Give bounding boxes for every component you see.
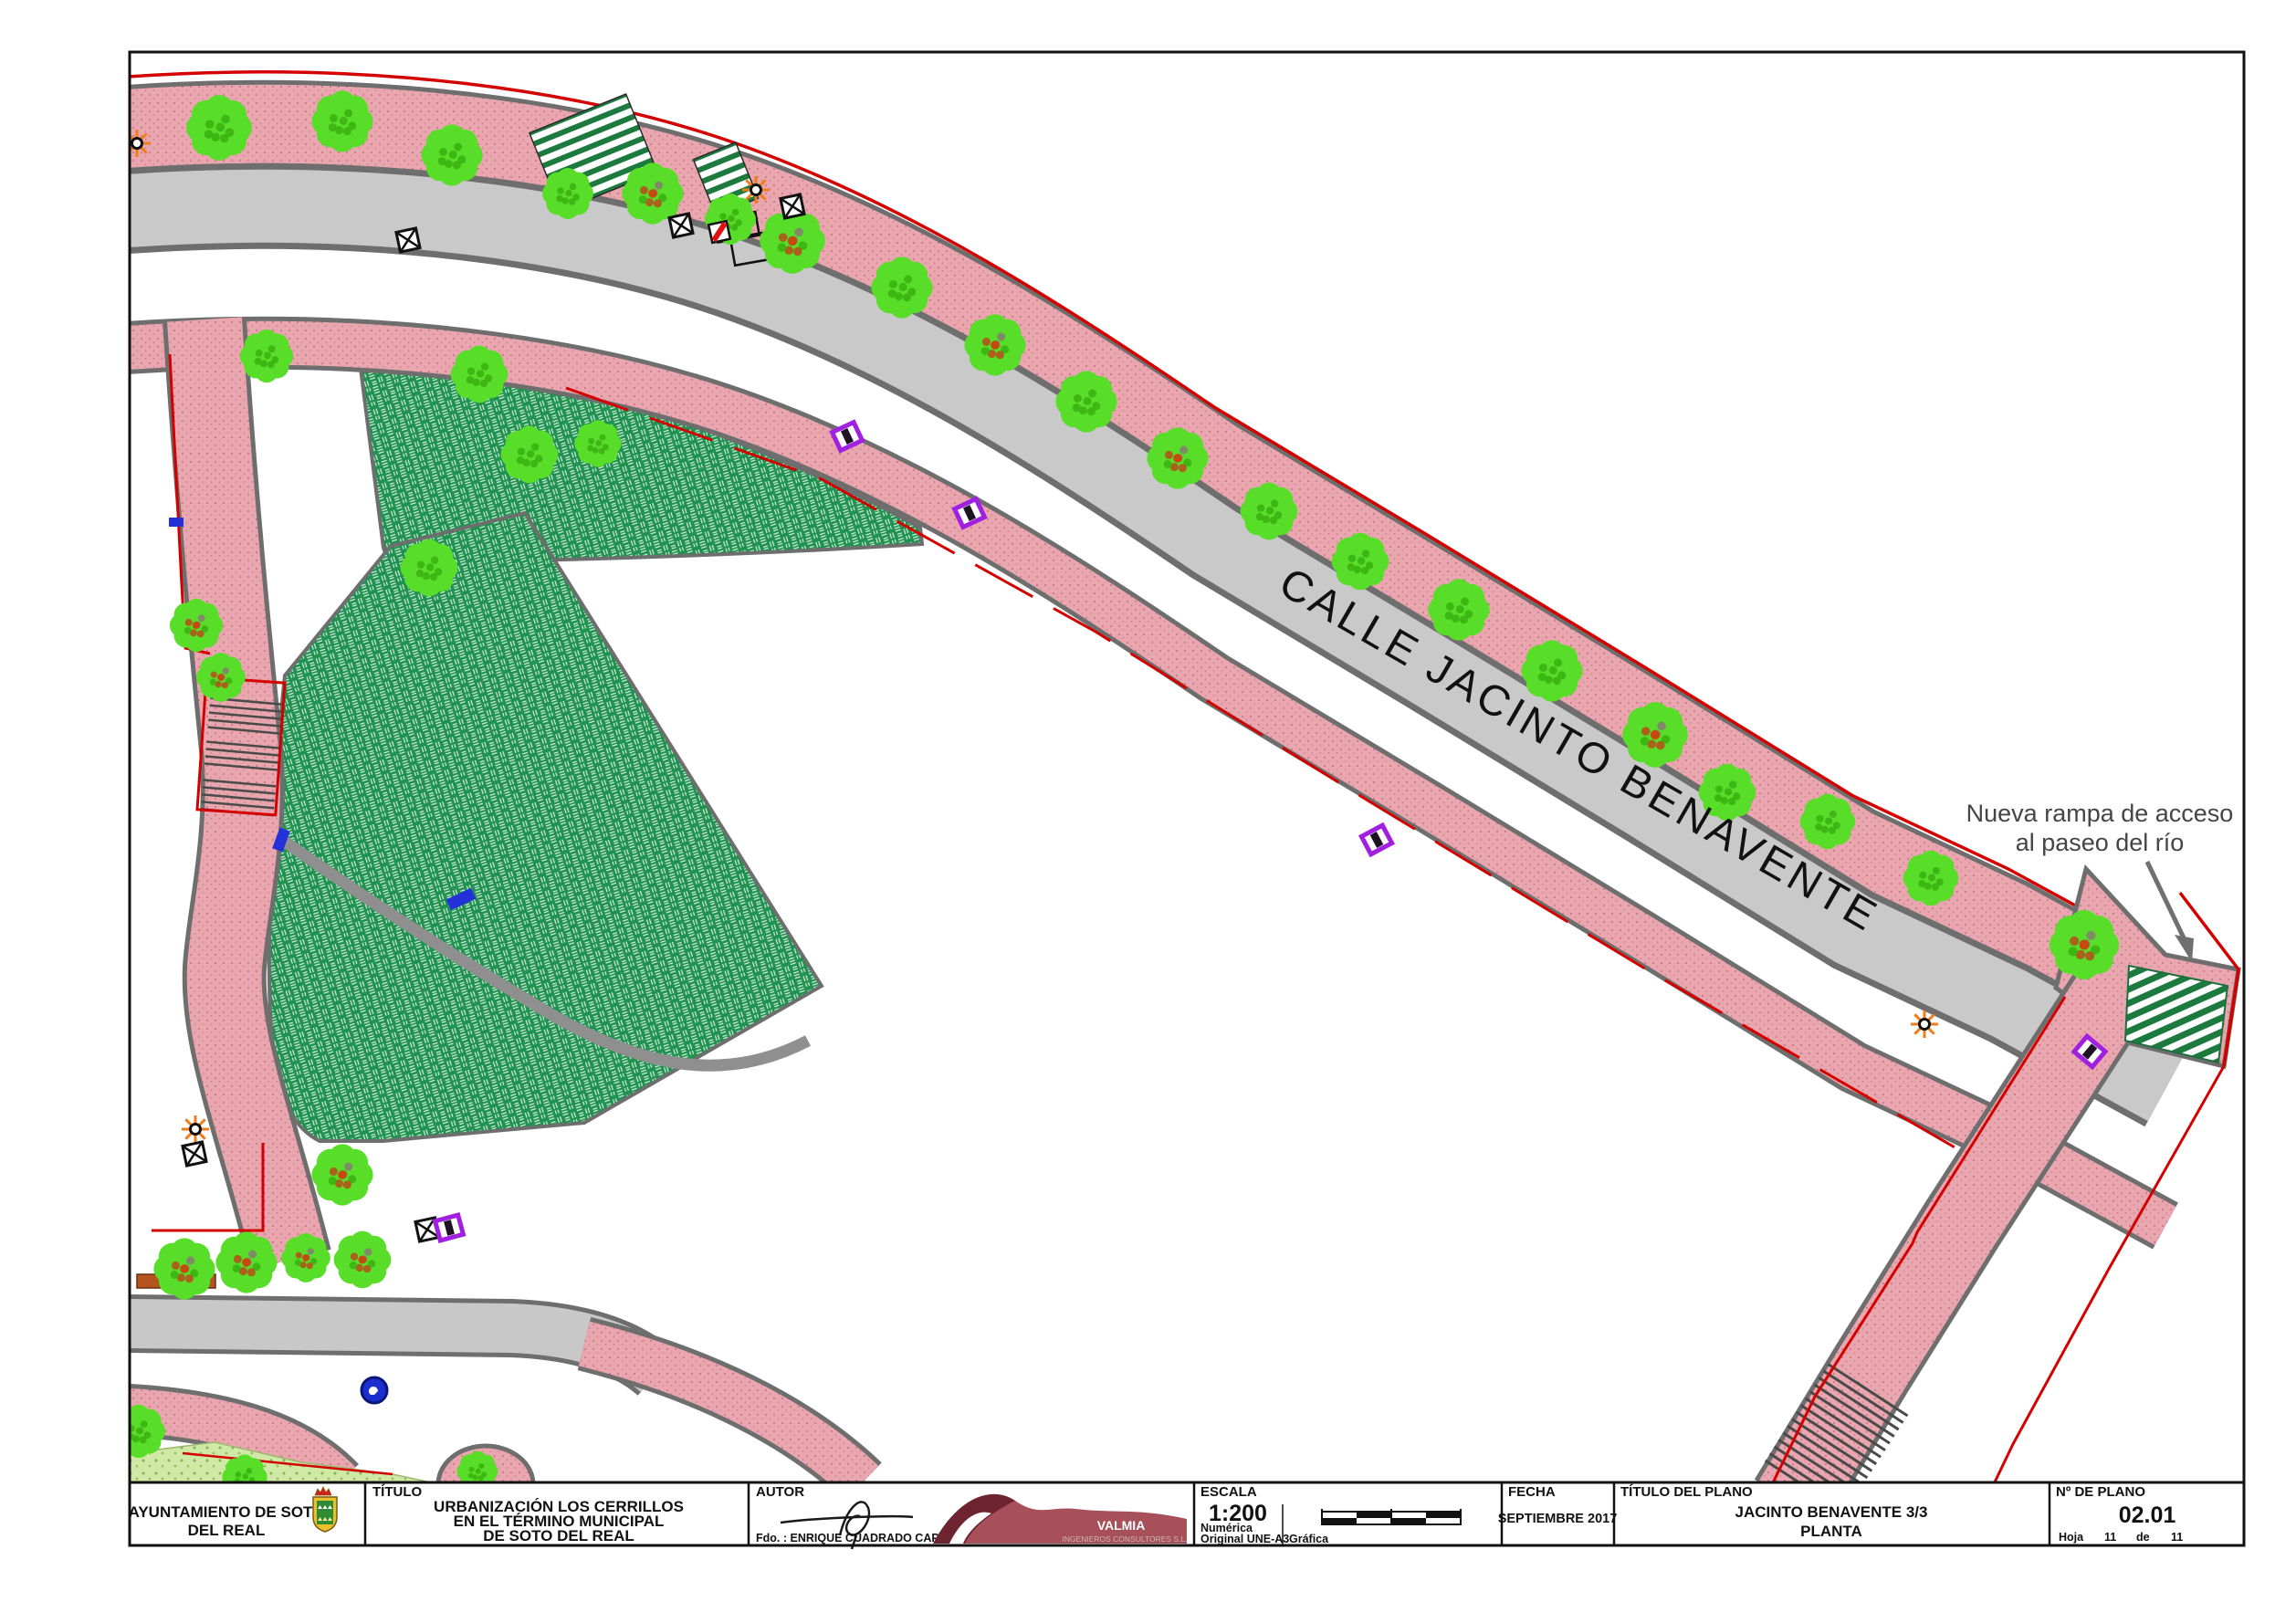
svg-text:AYUNTAMIENTO DE SOTO: AYUNTAMIENTO DE SOTO xyxy=(129,1503,325,1521)
bench-icon xyxy=(1361,825,1391,854)
tree-fruit-icon xyxy=(760,208,825,274)
tree-fruit-icon xyxy=(311,1144,372,1205)
annotation-arrow xyxy=(2147,862,2189,949)
svg-text:de: de xyxy=(2136,1531,2150,1544)
plan-sheet: CALLE JACINTO BENAVENTE Nueva rampa de a… xyxy=(0,0,2296,1602)
svg-text:DE SOTO DEL REAL: DE SOTO DEL REAL xyxy=(483,1527,634,1544)
svg-text:Hoja: Hoja xyxy=(2059,1531,2084,1544)
tree-icon xyxy=(311,90,372,152)
utility-box-icon xyxy=(183,1142,206,1166)
svg-text:Gráfica: Gráfica xyxy=(1289,1533,1329,1545)
svg-text:PLANTA: PLANTA xyxy=(1800,1523,1862,1540)
tree-icon xyxy=(1800,794,1855,849)
graphic-scale-bar xyxy=(1322,1509,1461,1524)
svg-text:INGENIEROS CONSULTORES S.L.: INGENIEROS CONSULTORES S.L. xyxy=(1062,1534,1187,1544)
tree-icon xyxy=(451,346,508,403)
tree-icon xyxy=(240,330,293,382)
tree-icon xyxy=(1428,579,1489,640)
electric-box-icon xyxy=(708,221,730,243)
tree-fruit-icon xyxy=(964,314,1025,375)
tree-icon xyxy=(1241,483,1298,540)
svg-text:TÍTULO DEL PLANO: TÍTULO DEL PLANO xyxy=(1620,1484,1753,1500)
plan-canvas: CALLE JACINTO BENAVENTE Nueva rampa de a… xyxy=(0,0,2296,1602)
left-walkway xyxy=(170,319,290,1260)
streetlight-icon xyxy=(742,176,770,204)
svg-text:Nº DE PLANO: Nº DE PLANO xyxy=(2056,1484,2145,1500)
tree-icon xyxy=(421,124,482,185)
tree-icon xyxy=(186,95,252,161)
bench-icon xyxy=(435,1215,464,1241)
svg-text:Nueva rampa de acceso: Nueva rampa de acceso xyxy=(1966,800,2234,827)
svg-text:Original UNE-A3: Original UNE-A3 xyxy=(1200,1533,1289,1545)
svg-text:AUTOR: AUTOR xyxy=(756,1484,804,1500)
svg-text:VALMIA: VALMIA xyxy=(1097,1518,1146,1533)
tree-icon xyxy=(1903,851,1958,906)
tree-icon xyxy=(1332,533,1389,591)
tree-icon xyxy=(871,257,932,318)
title-block: AYUNTAMIENTO DE SOTO DEL REAL TÍTULO URB… xyxy=(129,1482,2244,1549)
utility-box-icon xyxy=(396,228,420,252)
svg-text:ESCALA: ESCALA xyxy=(1200,1484,1257,1500)
tree-fruit-icon xyxy=(1147,427,1208,488)
tree-icon xyxy=(574,420,622,467)
site-plan: CALLE JACINTO BENAVENTE Nueva rampa de a… xyxy=(112,72,2238,1534)
svg-text:al paseo del río: al paseo del río xyxy=(2016,829,2185,856)
tree-fruit-icon xyxy=(2050,910,2119,979)
tree-fruit-icon xyxy=(334,1231,392,1289)
tree-fruit-icon xyxy=(153,1238,215,1299)
streetlight-icon xyxy=(182,1115,209,1143)
svg-text:TÍTULO: TÍTULO xyxy=(372,1484,422,1500)
tree-icon xyxy=(112,1405,165,1458)
streetlight-icon xyxy=(123,130,151,157)
svg-text:11: 11 xyxy=(2104,1531,2116,1544)
tree-icon xyxy=(501,426,559,484)
tree-fruit-icon xyxy=(170,599,223,652)
streetlight-icon xyxy=(1911,1010,1938,1038)
svg-text:SEPTIEMBRE 2017: SEPTIEMBRE 2017 xyxy=(1498,1512,1618,1526)
tree-fruit-icon xyxy=(281,1233,330,1283)
tree-fruit-icon xyxy=(622,162,683,224)
lawn-lower xyxy=(269,513,822,1141)
tree-icon xyxy=(1055,371,1117,432)
svg-text:JACINTO BENAVENTE 3/3: JACINTO BENAVENTE 3/3 xyxy=(1735,1503,1928,1521)
blue-marker-icon xyxy=(169,518,183,527)
tree-fruit-icon xyxy=(215,1231,277,1293)
utility-box-icon xyxy=(781,194,804,218)
fountain-icon xyxy=(362,1377,387,1403)
utility-box-icon xyxy=(669,214,693,237)
tree-fruit-icon xyxy=(196,653,246,702)
svg-text:11: 11 xyxy=(2171,1531,2183,1544)
svg-text:FECHA: FECHA xyxy=(1508,1484,1556,1500)
svg-text:DEL REAL: DEL REAL xyxy=(188,1522,266,1539)
tree-icon xyxy=(542,168,593,219)
svg-text:02.01: 02.01 xyxy=(2119,1503,2176,1528)
tree-icon xyxy=(401,539,458,597)
